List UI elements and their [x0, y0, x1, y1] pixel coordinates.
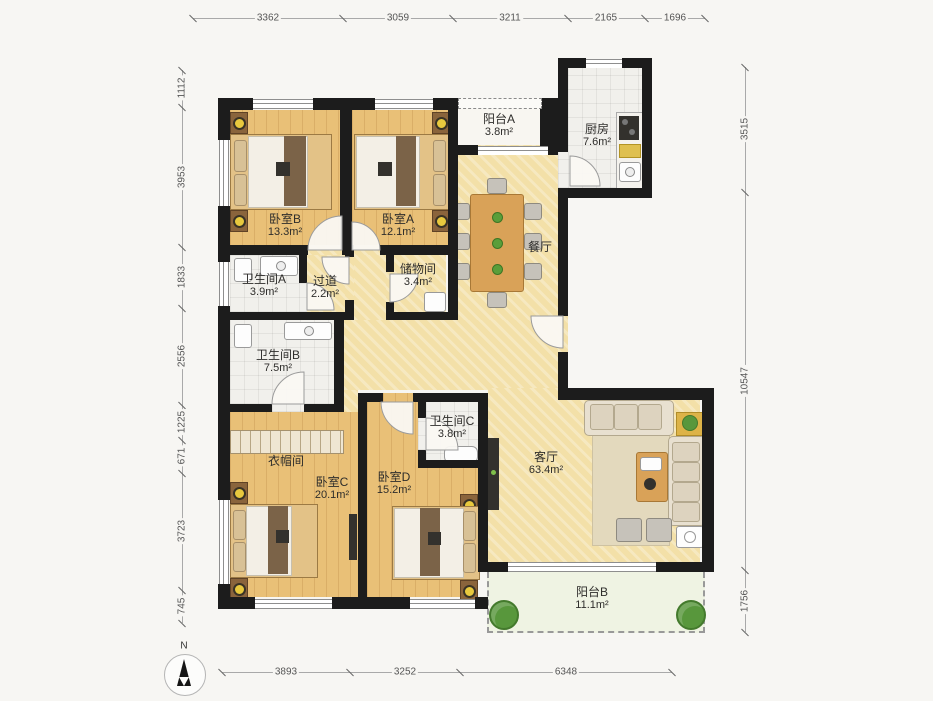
room-area: 3.4m² — [400, 277, 436, 290]
room-label-living: 客厅 63.4m² — [529, 450, 563, 478]
room-name: 餐厅 — [528, 240, 552, 254]
floor-plan: 卧室B 13.3m² 卧室A 12.1m² 阳台A 3.8m² 厨房 7.6m²… — [0, 0, 933, 701]
room-name: 卧室B — [268, 212, 302, 226]
door-bedroom-a — [352, 222, 380, 250]
room-area: 3.8m² — [483, 127, 515, 140]
room-name: 卧室C — [315, 475, 349, 489]
room-label-bathroom-c: 卫生间C 3.8m² — [430, 414, 475, 442]
room-label-hallway: 过道 2.2m² — [311, 274, 339, 302]
room-name: 卫生间C — [430, 414, 475, 428]
room-name: 厨房 — [583, 122, 611, 136]
room-area: 20.1m² — [315, 490, 349, 503]
room-name: 卧室D — [377, 470, 411, 484]
room-area: 3.9m² — [242, 287, 286, 300]
room-label-balcony-a: 阳台A 3.8m² — [483, 112, 515, 140]
room-name: 阳台A — [483, 112, 515, 126]
room-label-bathroom-a: 卫生间A 3.9m² — [242, 272, 286, 300]
room-name: 卫生间B — [256, 348, 300, 362]
door-bedroom-b — [308, 216, 342, 250]
room-area: 2.2m² — [311, 289, 339, 302]
room-label-bedroom-b: 卧室B 13.3m² — [268, 212, 302, 240]
room-label-dining: 餐厅 — [528, 240, 552, 254]
room-label-balcony-b: 阳台B 11.1m² — [575, 585, 608, 613]
room-name: 卧室A — [381, 212, 415, 226]
room-area: 12.1m² — [381, 227, 415, 240]
room-name: 卫生间A — [242, 272, 286, 286]
north-arrow-notch — [179, 677, 189, 686]
room-label-bedroom-c: 卧室C 20.1m² — [315, 475, 349, 503]
room-label-bedroom-a: 卧室A 12.1m² — [381, 212, 415, 240]
room-area: 7.6m² — [583, 137, 611, 150]
room-name: 衣帽间 — [268, 454, 304, 468]
room-area: 13.3m² — [268, 227, 302, 240]
room-label-storage: 储物间 3.4m² — [400, 262, 436, 290]
room-area: 15.2m² — [377, 485, 411, 498]
room-area: 11.1m² — [575, 600, 608, 613]
door-bedroom-d — [381, 402, 413, 434]
room-name: 客厅 — [529, 450, 563, 464]
room-label-cloakroom: 衣帽间 — [268, 454, 304, 468]
room-label-bathroom-b: 卫生间B 7.5m² — [256, 348, 300, 376]
room-name: 过道 — [311, 274, 339, 288]
room-area: 3.8m² — [430, 429, 475, 442]
room-area: 63.4m² — [529, 465, 563, 478]
door-bathroom-b — [272, 372, 304, 404]
door-kitchen — [570, 156, 600, 186]
room-name: 储物间 — [400, 262, 436, 276]
north-label: N — [180, 641, 187, 652]
door-entry — [531, 316, 563, 348]
room-name: 阳台B — [575, 585, 608, 599]
room-area: 7.5m² — [256, 363, 300, 376]
room-label-kitchen: 厨房 7.6m² — [583, 122, 611, 150]
door-arcs-layer — [0, 0, 933, 701]
room-label-bedroom-d: 卧室D 15.2m² — [377, 470, 411, 498]
